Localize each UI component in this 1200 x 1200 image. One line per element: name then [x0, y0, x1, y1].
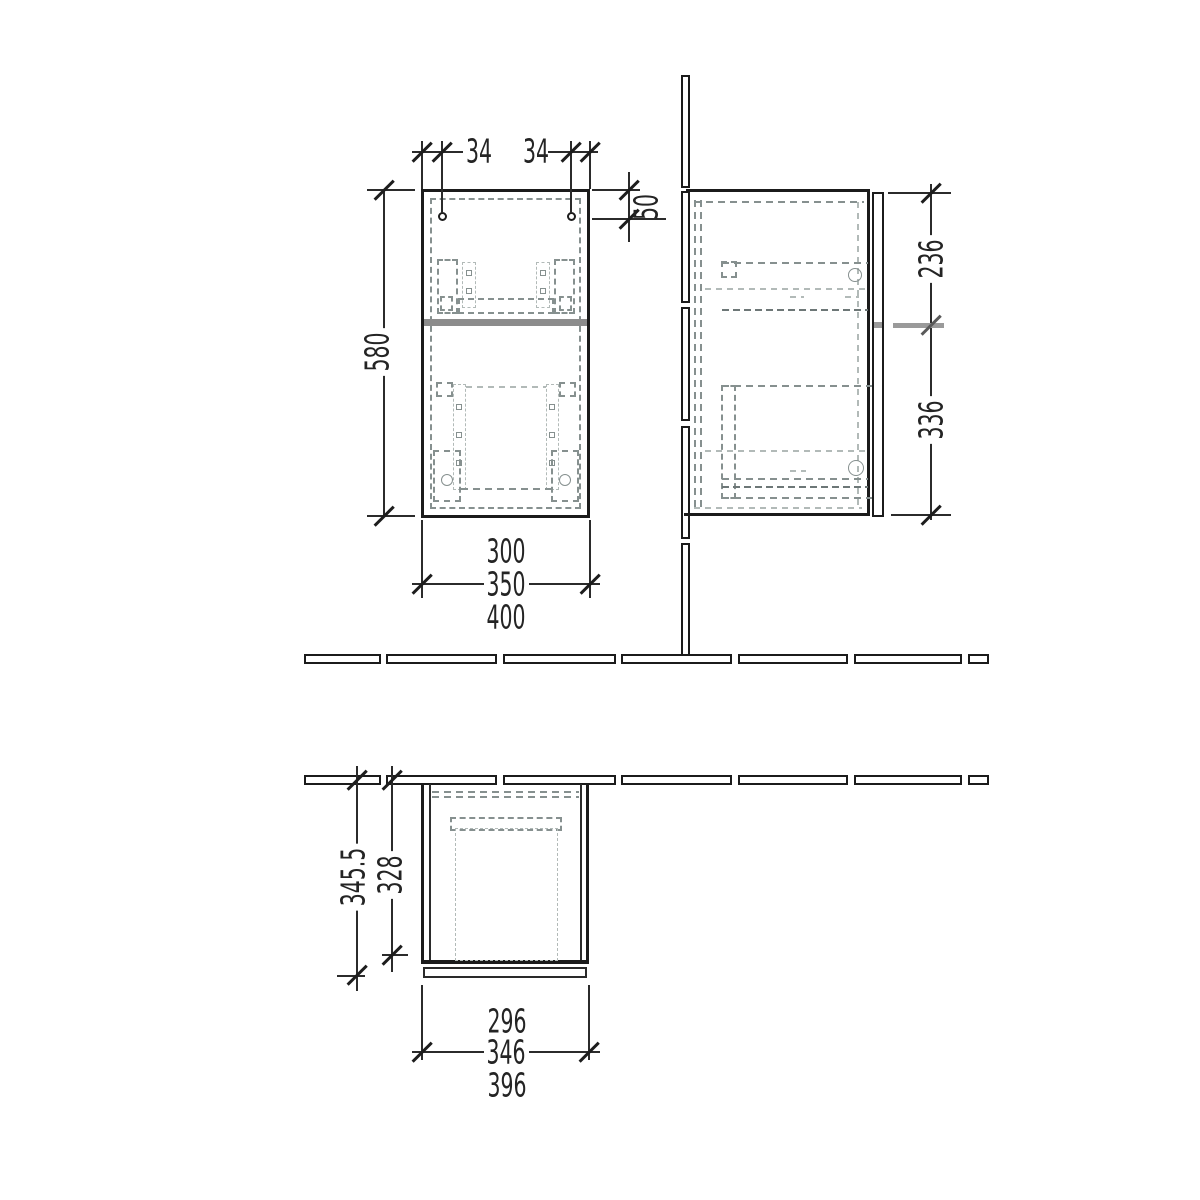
drawer-rail: [458, 298, 554, 314]
bracket-hook-right: [559, 474, 571, 486]
back-panel-dash: [700, 200, 702, 509]
drawer-rail-dash: [722, 478, 868, 480]
wall-section: [681, 75, 690, 188]
detail-dash: [790, 470, 806, 472]
wall-segment: [503, 654, 616, 664]
cabinet-bottom-edge: [684, 513, 870, 516]
mounting-hole-right: [567, 212, 576, 221]
back-rail-dash: [432, 791, 579, 793]
ext-line: [337, 975, 365, 977]
wall-segment: [304, 775, 381, 785]
wall-segment: [854, 775, 962, 785]
door-divider: [874, 322, 882, 328]
drawer-outline: [455, 828, 558, 961]
bottom-inner-dash: [694, 507, 862, 509]
wall-segment: [738, 654, 848, 664]
dim-label-width-inner: 300: [486, 535, 525, 568]
screw-hole: [466, 288, 472, 294]
wall-segment: [621, 654, 732, 664]
wall-section: [681, 307, 690, 421]
drawer-back-dash: [466, 386, 546, 388]
side-panel-left-inner: [429, 784, 431, 963]
drawer-front-dash: [461, 488, 551, 490]
screw-hole: [466, 270, 472, 276]
wall-segment: [304, 654, 381, 664]
cabinet-back-edge: [867, 189, 870, 516]
slide-hook: [848, 460, 864, 476]
wall-segment: [968, 775, 989, 785]
screw-hole: [456, 432, 462, 438]
door-panel: [423, 967, 587, 978]
detail-dash: [790, 296, 804, 298]
ext-line: [592, 189, 640, 191]
mounting-hole-left: [438, 212, 447, 221]
dim-label-depth-overall: 345.5: [335, 843, 372, 910]
rail-bracket: [721, 385, 736, 499]
ext-line: [382, 954, 408, 956]
screw-hole: [456, 404, 462, 410]
dim-label-width-overall: 400: [486, 601, 525, 634]
wall-section: [681, 543, 690, 658]
corner-clip-left: [436, 382, 453, 397]
back-rail-dash: [432, 796, 579, 798]
dim-label-hole-offset: 50: [630, 194, 663, 220]
wall-section: [681, 426, 690, 539]
drawer-rail-dash: [705, 288, 865, 290]
wall-segment: [854, 654, 962, 664]
dim-label-hole-right: 34: [523, 135, 549, 168]
ext-line: [888, 192, 951, 194]
dim-label-plan-width-overall: 396: [487, 1069, 526, 1102]
split-tick-bar: [893, 323, 944, 328]
rail-hook-right: [559, 296, 572, 311]
back-panel-dash: [694, 200, 696, 509]
corner-clip-right: [559, 382, 576, 397]
wall-section: [681, 191, 690, 303]
screw-hole: [540, 288, 546, 294]
door-front-panel: [872, 192, 884, 517]
side-panel-right-outer: [586, 784, 589, 963]
ext-line: [367, 189, 415, 191]
wall-segment: [386, 654, 497, 664]
ext-line: [891, 514, 951, 516]
bracket-hook-left: [441, 474, 453, 486]
screw-hole: [549, 404, 555, 410]
top-inner-dash: [694, 201, 864, 203]
drawer-rail-dash: [722, 262, 868, 264]
wall-segment: [738, 775, 848, 785]
side-panel-left-outer: [421, 784, 424, 963]
ext-line: [367, 515, 415, 517]
drawer-divider: [424, 319, 587, 326]
wall-segment: [386, 775, 497, 785]
wall-segment: [968, 654, 989, 664]
dim-label-hole-left: 34: [466, 135, 492, 168]
dim-label-width-carcass: 350: [486, 568, 525, 601]
screw-hole: [540, 270, 546, 276]
technical-drawing: 34 34 50 580 300 350 400: [0, 0, 1200, 1200]
dim-label-plan-width-carcass: 346: [486, 1036, 525, 1069]
screw-hole: [549, 432, 555, 438]
side-panel-right-inner: [580, 784, 582, 963]
drawer-rail-dash: [705, 450, 865, 452]
dim-label-lower: 336: [913, 396, 950, 444]
slide-hook: [848, 268, 862, 282]
drawer-rail-dash: [722, 486, 868, 488]
cabinet-top-edge: [686, 189, 870, 192]
drawer-rail-dash: [722, 309, 868, 311]
rail-hook-left: [440, 296, 453, 311]
dim-label-depth-inner: 328: [372, 851, 409, 899]
rail-bracket: [721, 261, 737, 278]
drawer-rail-dash: [722, 497, 872, 499]
dim-label-height: 580: [359, 328, 396, 376]
detail-dash: [845, 296, 859, 298]
wall-segment: [621, 775, 732, 785]
drawer-rail-dash: [722, 385, 872, 387]
dim-label-upper: 236: [913, 235, 950, 283]
wall-segment: [503, 775, 616, 785]
